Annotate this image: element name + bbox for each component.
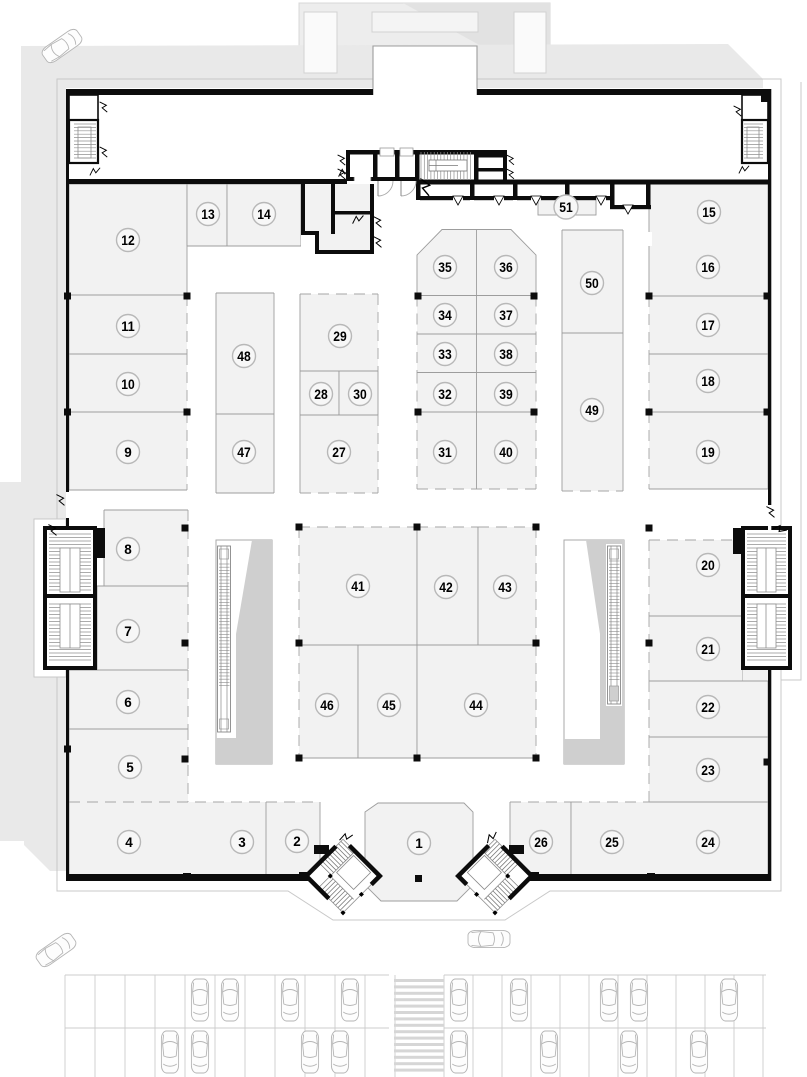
svg-text:1: 1 [415, 836, 423, 851]
svg-text:49: 49 [585, 403, 599, 418]
svg-text:24: 24 [701, 835, 715, 850]
svg-text:26: 26 [534, 835, 548, 850]
svg-text:13: 13 [201, 207, 215, 222]
svg-text:20: 20 [701, 558, 715, 573]
svg-text:50: 50 [585, 276, 599, 291]
svg-text:16: 16 [701, 260, 715, 275]
svg-text:2: 2 [293, 834, 301, 849]
svg-text:41: 41 [351, 579, 365, 594]
svg-text:27: 27 [332, 445, 346, 460]
svg-text:33: 33 [438, 347, 452, 362]
svg-text:42: 42 [439, 580, 453, 595]
svg-text:43: 43 [498, 580, 512, 595]
svg-text:22: 22 [701, 700, 715, 715]
svg-text:21: 21 [701, 642, 715, 657]
svg-text:8: 8 [124, 542, 132, 557]
svg-text:17: 17 [701, 318, 715, 333]
svg-text:28: 28 [314, 387, 328, 402]
svg-text:19: 19 [701, 445, 715, 460]
svg-text:36: 36 [499, 260, 513, 275]
svg-text:6: 6 [124, 695, 132, 710]
svg-text:32: 32 [438, 387, 452, 402]
svg-text:48: 48 [237, 349, 251, 364]
svg-text:14: 14 [257, 207, 271, 222]
svg-text:4: 4 [125, 835, 133, 850]
svg-text:23: 23 [701, 763, 715, 778]
svg-text:12: 12 [121, 233, 135, 248]
svg-text:11: 11 [121, 319, 135, 334]
svg-text:40: 40 [499, 445, 513, 460]
svg-text:10: 10 [121, 377, 135, 392]
svg-text:39: 39 [499, 387, 513, 402]
svg-text:3: 3 [238, 835, 246, 850]
svg-text:30: 30 [353, 387, 367, 402]
svg-text:18: 18 [701, 374, 715, 389]
svg-text:15: 15 [702, 205, 716, 220]
svg-text:34: 34 [438, 308, 452, 323]
svg-text:35: 35 [438, 260, 452, 275]
svg-text:44: 44 [469, 698, 483, 713]
svg-text:47: 47 [237, 445, 251, 460]
svg-text:51: 51 [559, 200, 573, 215]
svg-text:38: 38 [499, 347, 513, 362]
svg-text:46: 46 [320, 698, 334, 713]
svg-text:45: 45 [382, 698, 396, 713]
svg-text:9: 9 [124, 445, 132, 460]
svg-text:5: 5 [126, 760, 134, 775]
svg-text:7: 7 [124, 624, 132, 639]
svg-text:31: 31 [438, 445, 452, 460]
svg-text:37: 37 [499, 308, 513, 323]
svg-text:25: 25 [605, 835, 619, 850]
svg-text:29: 29 [333, 329, 347, 344]
